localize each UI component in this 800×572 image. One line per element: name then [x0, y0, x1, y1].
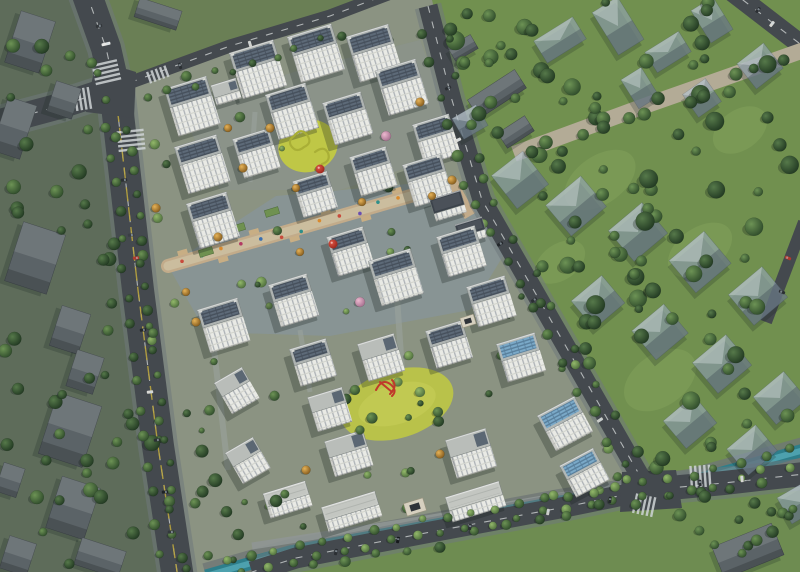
car: [162, 490, 169, 493]
market-stall: [280, 235, 284, 239]
market-stall: [259, 237, 263, 241]
red-sphere-sculpture: [329, 240, 338, 249]
market-stall: [318, 219, 322, 223]
car: [168, 530, 175, 533]
car: [740, 476, 743, 483]
market-stall: [358, 212, 362, 216]
car: [147, 390, 154, 394]
market-stall: [338, 214, 342, 218]
market-stall: [180, 259, 184, 263]
market-stall: [239, 242, 243, 246]
market-stall: [219, 247, 223, 251]
market-stall: [299, 230, 303, 234]
market-stall: [376, 200, 380, 204]
aerial-rendering-canvas: [0, 0, 800, 572]
masterplan-birdseye-scene: [0, 0, 800, 572]
car: [154, 438, 161, 442]
market-stall: [396, 196, 400, 200]
red-sphere-sculpture: [316, 165, 325, 174]
car: [698, 480, 701, 487]
